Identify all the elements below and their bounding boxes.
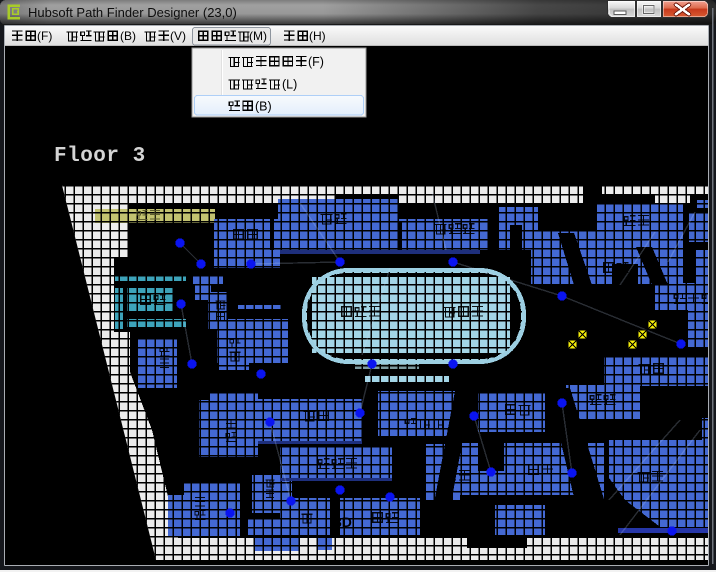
svg-text:(M): (M) <box>249 29 267 43</box>
svg-text:Hubsoft Path Finder Designer (: Hubsoft Path Finder Designer (23,0) <box>28 5 237 20</box>
svg-text:(F): (F) <box>37 29 52 43</box>
svg-text:(B): (B) <box>120 29 136 43</box>
svg-text:(B): (B) <box>255 100 272 114</box>
svg-text:(V): (V) <box>170 29 186 43</box>
svg-text:(F): (F) <box>308 55 324 69</box>
svg-text:(L): (L) <box>282 78 297 92</box>
svg-text:3D: 3D <box>334 514 352 530</box>
svg-text:Floor 3: Floor 3 <box>54 145 146 168</box>
svg-text:(H): (H) <box>309 29 326 43</box>
